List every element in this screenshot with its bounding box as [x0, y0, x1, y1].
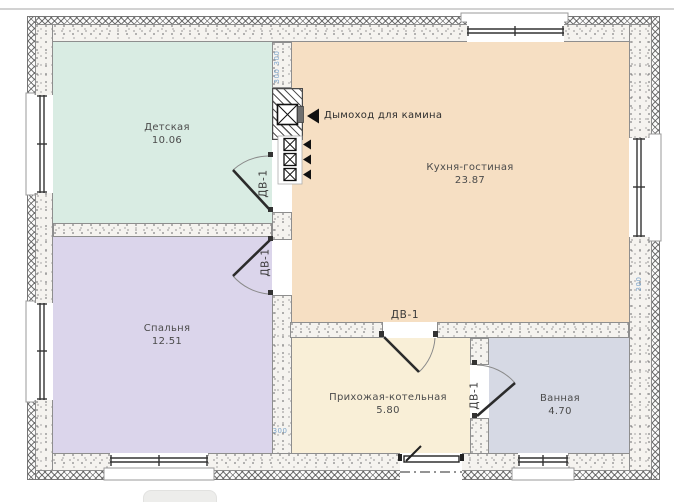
room-label-bathroom: Ванная 4.70 — [490, 392, 630, 418]
door-tag-hallway: ДВ-1 — [383, 309, 427, 322]
door-tag-children: ДВ-1 — [258, 162, 271, 206]
room-label-bedroom: Спальня 12.51 — [97, 322, 237, 348]
room-area: 23.87 — [400, 174, 540, 187]
room-label-children: Детская 10.06 — [97, 121, 237, 147]
wall-kitchen-hallway-left — [290, 322, 383, 338]
wall-kitchen-bathroom — [437, 322, 629, 338]
room-label-kitchen-living: Кухня-гостиная 23.87 — [400, 161, 540, 187]
dimension-label: 300 — [273, 48, 281, 68]
room-name: Прихожая-котельная — [318, 391, 458, 404]
page-top-divider — [0, 8, 674, 10]
wall-outer-bottom — [35, 453, 652, 471]
room-name: Спальня — [97, 322, 237, 335]
wall-children-kitchen-stub-mid — [272, 212, 292, 240]
room-label-hallway-boiler: Прихожая-котельная 5.80 — [318, 391, 458, 417]
door-tag-bedroom: ДВ-1 — [260, 241, 273, 285]
room-name: Ванная — [490, 392, 630, 405]
bottom-partial-button[interactable] — [143, 490, 217, 502]
room-area: 4.70 — [490, 405, 630, 418]
room-name: Детская — [97, 121, 237, 134]
wall-outer-left — [35, 24, 53, 471]
wall-outer-bottom-cladding — [27, 470, 660, 480]
room-area: 10.06 — [97, 134, 237, 147]
floor-plan-page: Детская 10.06 Кухня-гостиная 23.87 Спаль… — [0, 0, 674, 502]
room-area: 12.51 — [97, 335, 237, 348]
door-tag-bathroom: ДВ-1 — [469, 374, 482, 418]
room-name: Кухня-гостиная — [400, 161, 540, 174]
room-area: 5.80 — [318, 404, 458, 417]
wall-outer-right — [629, 24, 652, 471]
chimney-callout-text: Дымоход для камина — [324, 110, 442, 121]
wall-hallway-bathroom-stub-bottom — [470, 418, 489, 454]
wall-children-bedroom — [53, 223, 272, 237]
wall-outer-right-cladding — [651, 16, 660, 480]
dimension-label: 300 — [635, 274, 643, 294]
dimension-label: 300 — [273, 66, 281, 86]
wall-hallway-bathroom-stub-top — [470, 338, 489, 365]
chimney-masonry-block — [272, 88, 303, 140]
wall-outer-top — [35, 24, 652, 42]
dimension-label: 300 — [270, 427, 290, 435]
